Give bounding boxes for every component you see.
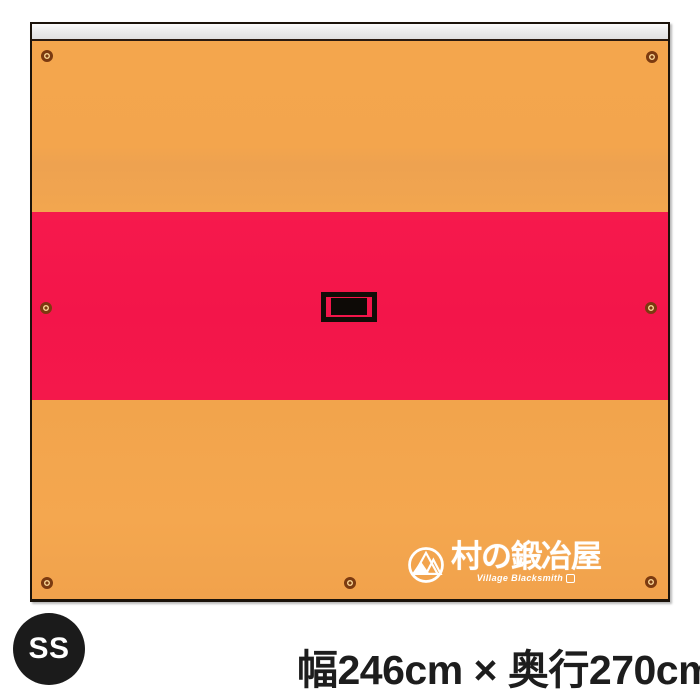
dimensions-caption: 幅246cm × 奥行270cm — [297, 636, 697, 696]
tarp-top-sleeve — [32, 24, 668, 41]
grommet-icon — [645, 302, 657, 314]
grommet-icon — [41, 50, 53, 62]
center-handle-patch — [321, 292, 377, 322]
tarp-product-photo: 村の鍛冶屋 Village Blacksmith — [30, 22, 670, 602]
grommet-icon — [344, 577, 356, 589]
grommet-icon — [41, 577, 53, 589]
brand-logo: 村の鍛冶屋 Village Blacksmith — [407, 538, 601, 584]
brand-mark-icon — [566, 574, 575, 583]
tarp-top-panel — [32, 41, 668, 212]
size-badge-label: SS — [28, 632, 69, 666]
grommet-icon — [645, 576, 657, 588]
brand-name-kanji: 村の鍛冶屋 — [451, 538, 601, 575]
grommet-icon — [646, 51, 658, 63]
size-badge: SS — [13, 613, 85, 685]
grommet-icon — [40, 302, 52, 314]
brand-emblem-mountain-icon — [407, 546, 445, 584]
center-handle-strap — [331, 298, 367, 315]
brand-name-english: Village Blacksmith — [477, 573, 563, 583]
